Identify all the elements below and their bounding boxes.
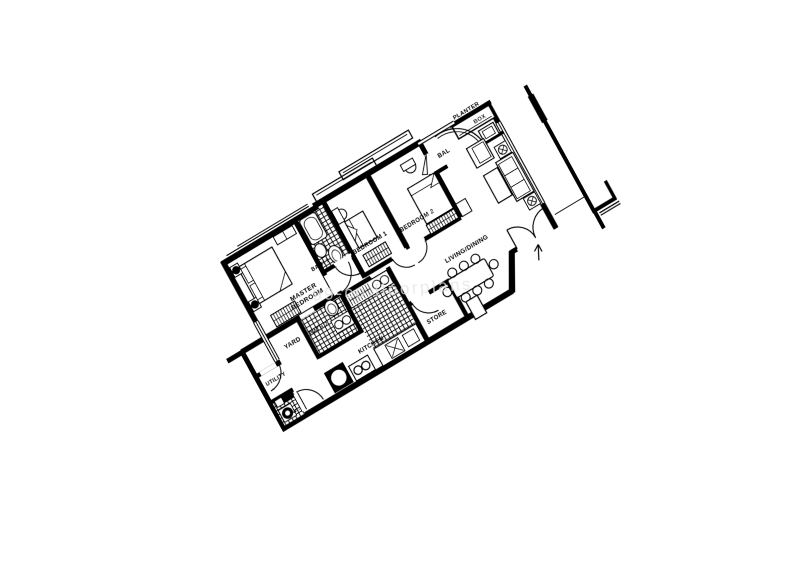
svg-text:YARD: YARD <box>283 336 302 352</box>
svg-text:BAL: BAL <box>437 148 451 160</box>
svg-text:UTILITY: UTILITY <box>265 371 287 388</box>
svg-text:STORE: STORE <box>426 310 448 327</box>
